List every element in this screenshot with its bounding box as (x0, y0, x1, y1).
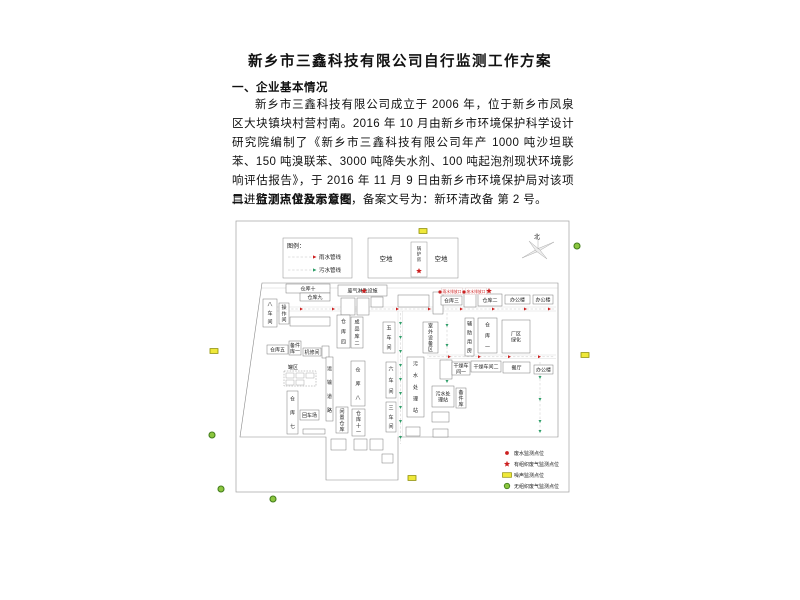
map-label: 空地 (435, 254, 449, 263)
map-label: 一 (485, 344, 490, 350)
noise-monitoring-marker (210, 349, 218, 354)
map-label: 干燥车 (453, 362, 468, 369)
map-label: 处 (413, 384, 418, 391)
map-label: 废水监测点位 (514, 450, 544, 457)
map-label: 车 (386, 334, 391, 341)
map-label: 图例： (287, 242, 305, 250)
building (433, 429, 448, 437)
map-label: 六 (388, 365, 393, 372)
wastewater-point-icon (505, 451, 509, 455)
fugitive-gas-monitoring-marker (574, 243, 580, 249)
building (354, 439, 367, 450)
pipe-legend: 图例：雨水管线污水管线 (283, 238, 352, 278)
map-label: 库 (290, 409, 295, 416)
map-label: 库一 (290, 348, 300, 355)
map-label: 二 (354, 341, 359, 347)
map-label: 十 (356, 422, 361, 429)
map-label: 四 (341, 340, 346, 346)
map-label: 雨水排放口 (443, 289, 462, 294)
map-label: 路 (327, 407, 332, 414)
map-label: 噪声监测点位 (514, 472, 544, 479)
wastewater-monitoring-marker (438, 290, 441, 293)
map-label: 干燥车间二 (473, 363, 498, 370)
map-label: 件 (458, 395, 463, 402)
map-label: 八 (355, 395, 360, 401)
map-label: 仓 (356, 410, 361, 417)
document-title: 新乡市三鑫科技有限公司自行监测工作方案 (0, 50, 800, 71)
noise-monitoring-marker (581, 353, 589, 358)
map-label: 车 (267, 310, 272, 317)
map-label: 房 (417, 256, 421, 263)
map-label: 仓 (485, 321, 490, 328)
section-heading-monitoring-points: 二、监测点位及示意图 (232, 191, 352, 207)
map-label: 输 (327, 379, 332, 386)
building (398, 295, 429, 307)
building (341, 298, 355, 315)
map-label: 理 (413, 396, 418, 402)
map-label: 回车场 (302, 412, 317, 419)
map-label: 餐厅 (511, 364, 521, 371)
map-label: 间 (388, 388, 393, 395)
map-label: 一 (356, 430, 361, 436)
map-label: 备件 (290, 342, 300, 349)
wastewater-monitoring-marker (462, 290, 465, 293)
map-label: 有组织废气监测点位 (514, 461, 559, 468)
fugitive-gas-monitoring-marker (218, 486, 224, 492)
map-label: 八 (267, 302, 272, 308)
map-label: 作 (281, 310, 286, 317)
map-label: 房 (467, 347, 472, 354)
map-label: 仓 (290, 396, 295, 403)
building (303, 429, 325, 434)
map-label: 操 (281, 304, 286, 311)
map-label: 道 (327, 393, 332, 400)
map-label: 库 (354, 333, 359, 340)
map-label: 间一 (456, 368, 466, 375)
document-page: 新乡市三鑫科技有限公司自行监测工作方案 一、企业基本情况 新乡市三鑫科技有限公司… (0, 0, 800, 600)
building (370, 439, 383, 450)
map-label: 运 (327, 365, 332, 372)
noise-monitoring-marker (408, 476, 416, 481)
map-label: 污 (413, 361, 418, 368)
map-label: 间 (386, 344, 391, 351)
map-label: 间 (267, 318, 272, 325)
map-label: 库 (356, 416, 361, 423)
map-label: 库 (458, 401, 463, 408)
map-label: 无组织废气监测点位 (514, 483, 559, 490)
map-label: 库 (355, 380, 360, 387)
map-label: 间 (388, 423, 393, 430)
map-label: 仓 (355, 366, 360, 373)
building (382, 454, 393, 463)
building (432, 412, 449, 422)
noise-monitoring-marker (419, 229, 427, 234)
map-label: 库 (339, 426, 344, 433)
map-label: 用 (467, 339, 472, 345)
fugitive-gas-monitoring-marker (209, 432, 215, 438)
building (371, 297, 383, 307)
map-label: 污水管线 (319, 266, 342, 274)
map-label: 办公楼 (535, 296, 550, 303)
map-label: 仓 (339, 420, 344, 427)
map-label: 间 (281, 317, 286, 324)
site-map-figure: 仓库十仓库九八车间操作间废气淋洗设施仓库三仓库二办公楼办公楼仓库四成品库二五车间… (195, 215, 600, 545)
open-area: 空地空地锅炉房 (368, 238, 458, 278)
building (322, 346, 329, 358)
fugitive-gas-monitoring-marker (270, 496, 276, 502)
map-label: 污水处 (435, 390, 450, 397)
map-label: 成 (354, 318, 359, 325)
map-label: 仓库二 (482, 297, 497, 304)
map-label: 废水排放口 (467, 289, 486, 294)
map-label: 车 (388, 377, 393, 384)
map-label: 仓 (341, 318, 346, 325)
map-label: 罐区 (288, 364, 298, 371)
map-label: 七 (290, 423, 295, 430)
map-label: 仓库九 (307, 294, 322, 301)
map-label: 仓库十 (300, 285, 315, 292)
map-label: 水 (413, 372, 418, 379)
map-label: 仓库五 (270, 346, 285, 353)
building (357, 298, 369, 315)
map-label: 理站 (438, 396, 448, 403)
map-label: 区 (428, 347, 433, 353)
map-label: 北 (534, 233, 540, 241)
map-label: 空地 (380, 254, 394, 263)
map-label: 三 (388, 405, 393, 411)
map-label: 车 (388, 414, 393, 421)
map-label: 闲 (339, 408, 344, 415)
map-label: 备 (458, 389, 463, 396)
map-label: 助 (467, 329, 472, 336)
map-label: 机修间 (304, 349, 319, 356)
map-label: 办公楼 (536, 366, 551, 373)
building (290, 317, 330, 326)
map-label: 雨水管线 (319, 253, 342, 261)
map-label: 绿化 (511, 336, 521, 343)
fugitive-gas-point-icon (504, 483, 509, 488)
map-label: 库 (341, 328, 346, 335)
map-label: 仓库三 (444, 297, 459, 304)
building (440, 360, 452, 379)
noise-point-icon (503, 473, 512, 478)
map-label: 五 (386, 326, 391, 332)
building (406, 427, 420, 436)
map-label: 办公楼 (510, 296, 525, 303)
building (331, 439, 346, 450)
map-label: 站 (413, 407, 418, 414)
map-label: 辅 (467, 320, 472, 327)
map-label: 品 (354, 327, 359, 333)
section-heading-basic-info: 一、企业基本情况 (232, 79, 328, 95)
map-label: 库 (485, 332, 490, 339)
